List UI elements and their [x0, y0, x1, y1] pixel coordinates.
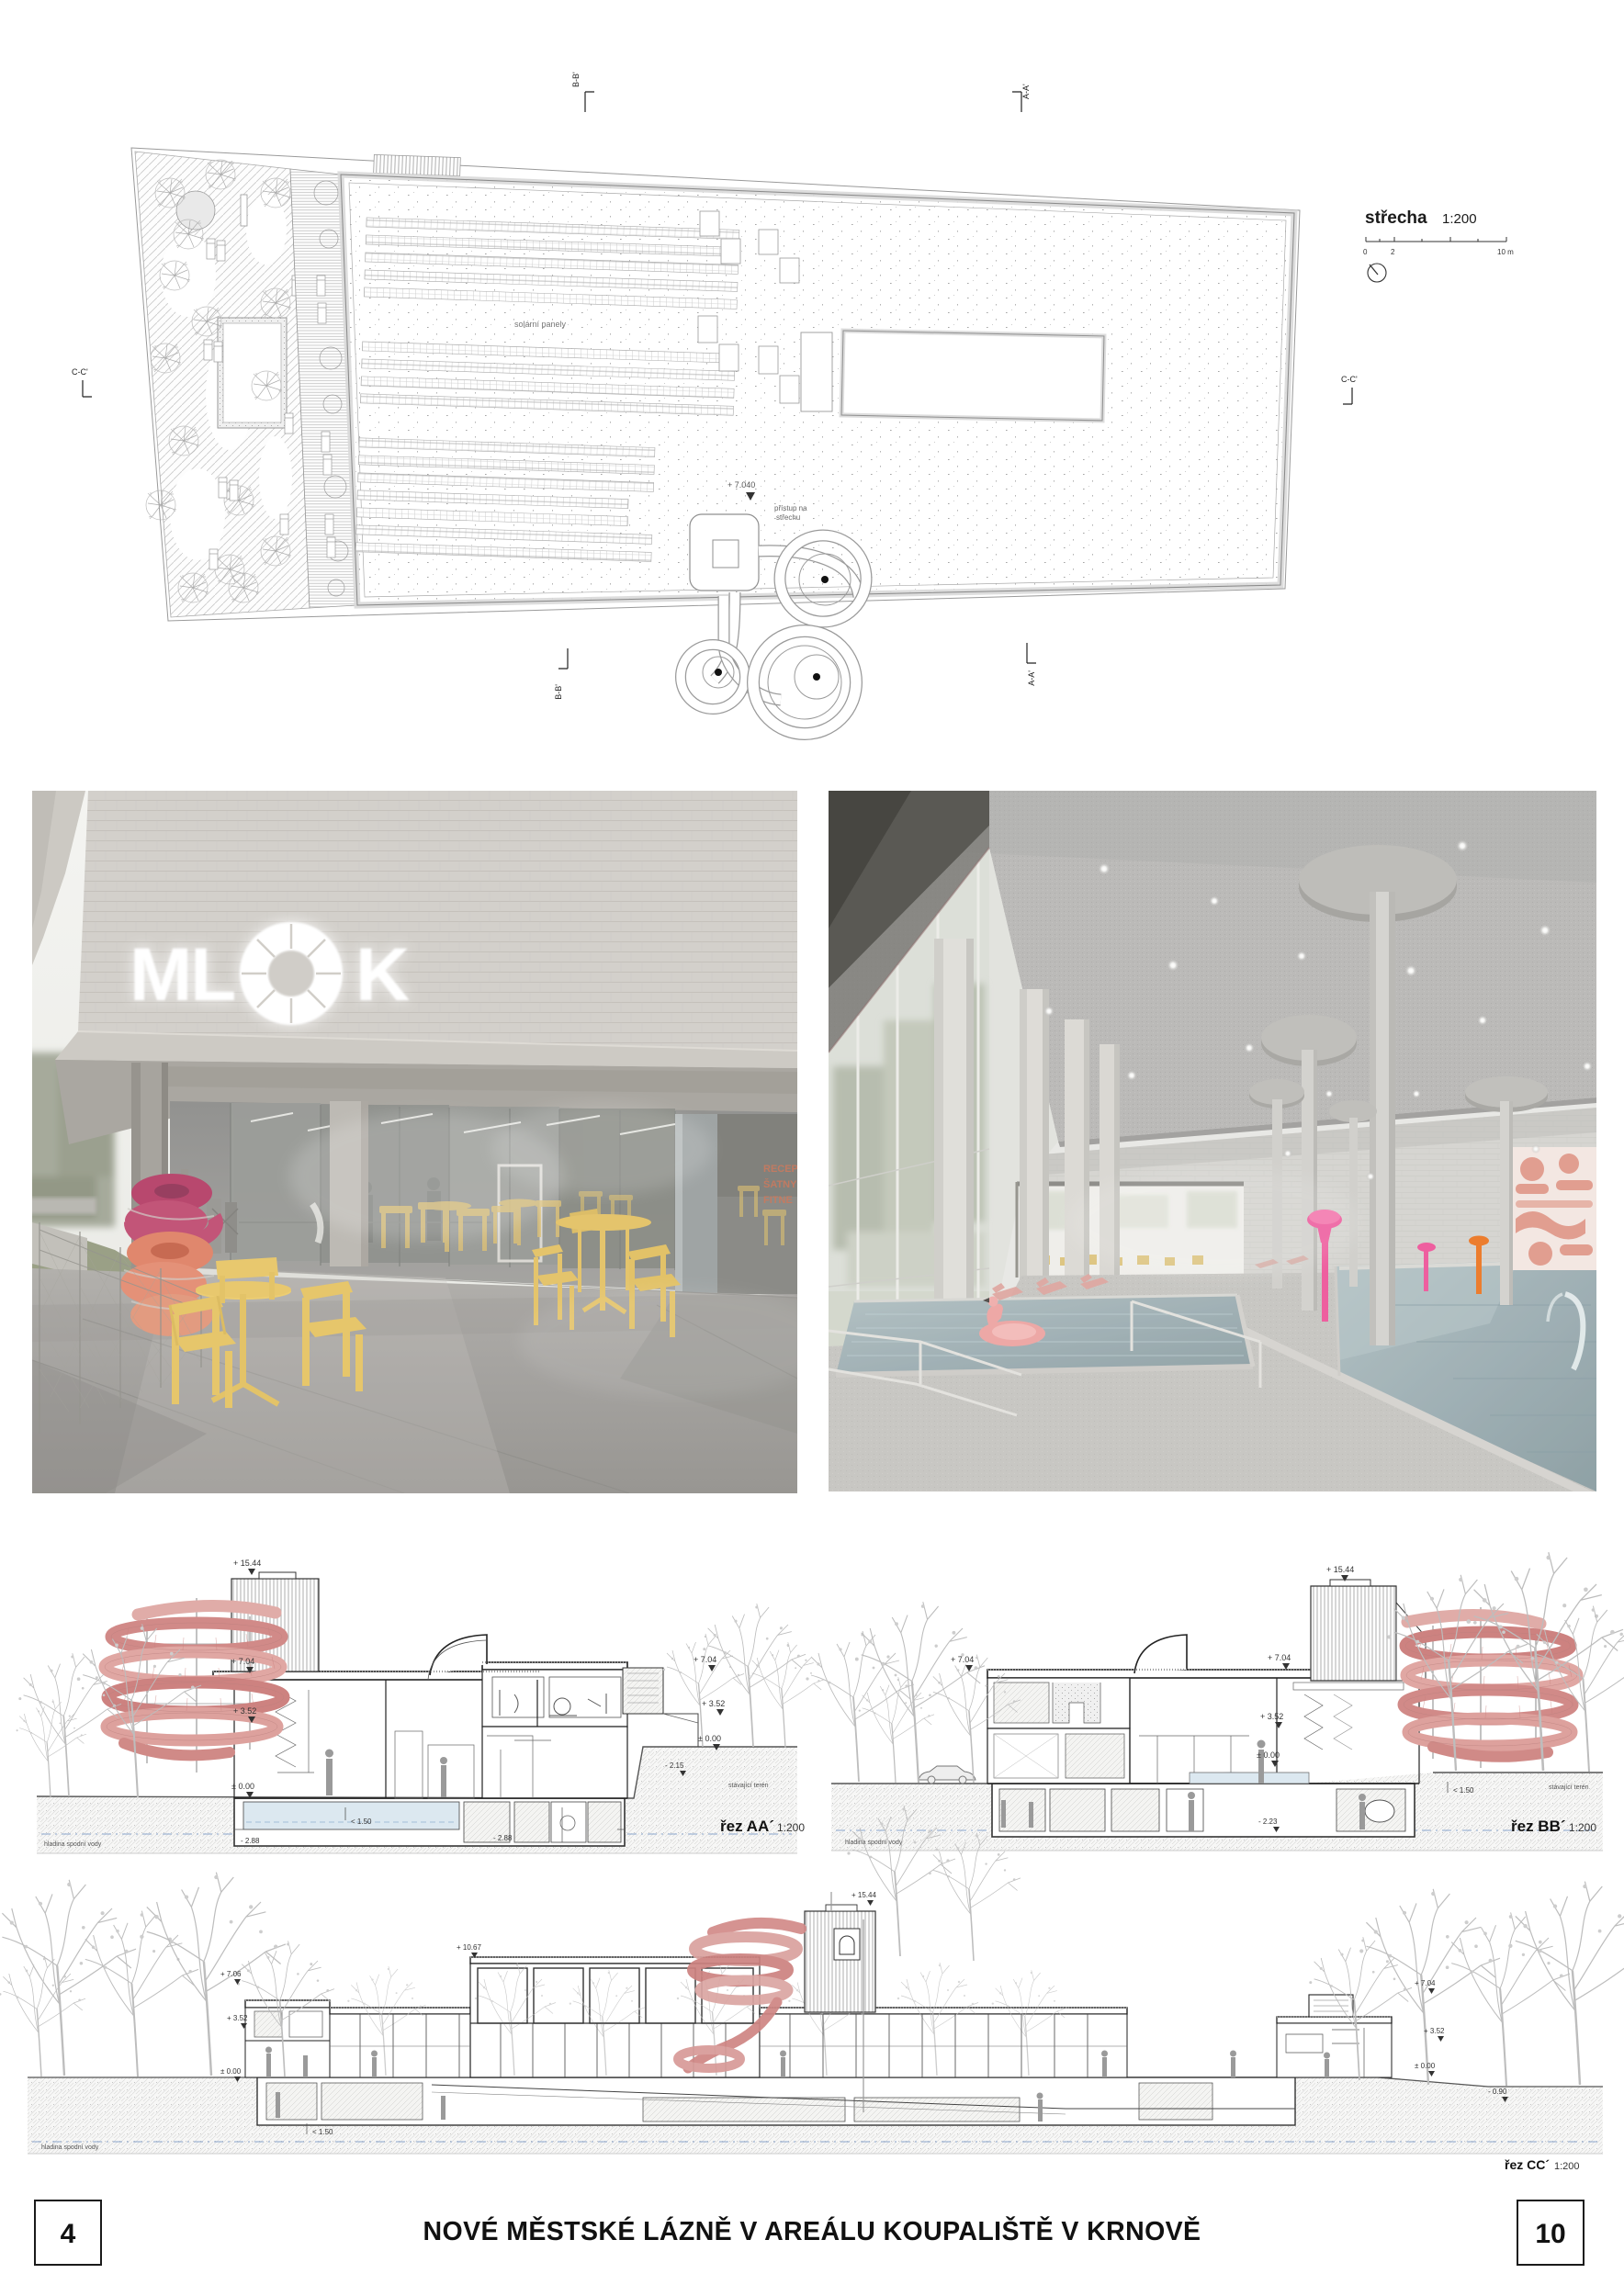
svg-text:střechu: střechu [776, 513, 800, 522]
svg-text:RECEP: RECEP [763, 1164, 798, 1175]
svg-text:10: 10 [1535, 2219, 1565, 2249]
svg-text:+ 3.52: + 3.52 [1424, 2027, 1445, 2035]
svg-text:+ 7.06: + 7.06 [220, 1970, 242, 1978]
svg-text:ŠATNY: ŠATNY [763, 1178, 797, 1190]
svg-text:± 0.00: ± 0.00 [220, 2067, 242, 2076]
svg-text:± 0.00: ± 0.00 [1257, 1750, 1280, 1760]
svg-text:B-B': B-B' [554, 684, 563, 700]
svg-text:- 2.15: - 2.15 [665, 1761, 684, 1770]
svg-text:0: 0 [1363, 248, 1368, 256]
svg-text:C-C': C-C' [1341, 375, 1358, 384]
svg-text:+ 7.04: + 7.04 [694, 1655, 716, 1664]
svg-text:A-A': A-A' [1027, 670, 1036, 686]
svg-text:B-B': B-B' [571, 72, 581, 87]
svg-text:řez CC´: řez CC´ [1505, 2157, 1550, 2172]
svg-text:- 2.23: - 2.23 [1258, 1818, 1278, 1826]
svg-text:1:200: 1:200 [1554, 2161, 1580, 2172]
svg-text:+ 7.04: + 7.04 [231, 1657, 254, 1666]
svg-text:10 m: 10 m [1497, 248, 1514, 256]
svg-text:± 0.00: ± 0.00 [1415, 2062, 1436, 2070]
svg-text:C-C': C-C' [72, 367, 88, 377]
svg-text:< 1.50: < 1.50 [1453, 1786, 1474, 1795]
svg-text:- 0.90: - 0.90 [1488, 2088, 1507, 2096]
svg-text:stávající terén: stávající terén [1549, 1784, 1589, 1791]
svg-text:4: 4 [61, 2219, 76, 2249]
svg-text:hladina spodní vody: hladina spodní vody [44, 1841, 102, 1848]
svg-text:< 1.50: < 1.50 [351, 1818, 372, 1826]
svg-text:1:200: 1:200 [777, 1821, 805, 1834]
svg-text:FITNE: FITNE [763, 1195, 793, 1206]
svg-text:+ 3.52: + 3.52 [227, 2014, 248, 2022]
svg-text:± 0.00: ± 0.00 [698, 1734, 721, 1743]
svg-text:hladina spodní vody: hladina spodní vody [41, 2144, 99, 2151]
svg-text:+ 7.04: + 7.04 [951, 1655, 974, 1664]
svg-text:přístup na: přístup na [774, 504, 807, 512]
svg-text:+ 7.040: + 7.040 [727, 480, 755, 490]
svg-text:+ 10.67: + 10.67 [457, 1943, 481, 1952]
svg-text:stávající terén: stávající terén [728, 1783, 769, 1789]
svg-text:řez AA´: řez AA´ [720, 1818, 774, 1835]
svg-text:+ 15.44: + 15.44 [1326, 1565, 1354, 1574]
svg-text:solární panely: solární panely [514, 320, 567, 329]
svg-text:hladina spodní vody: hladina spodní vody [845, 1840, 903, 1846]
svg-text:NOVÉ MĚSTSKÉ LÁZNĚ V AREÁLU KO: NOVÉ MĚSTSKÉ LÁZNĚ V AREÁLU KOUPALIŠTĚ V… [423, 2216, 1201, 2246]
svg-text:A-A': A-A' [1021, 84, 1031, 99]
svg-text:1:200: 1:200 [1442, 211, 1477, 227]
svg-text:1:200: 1:200 [1569, 1821, 1596, 1834]
svg-text:+ 3.52: + 3.52 [1260, 1712, 1283, 1721]
svg-text:- 2.88: - 2.88 [493, 1834, 513, 1842]
svg-text:< 1.50: < 1.50 [312, 2128, 333, 2136]
svg-text:+ 15.44: + 15.44 [851, 1891, 876, 1899]
svg-text:+ 3.52: + 3.52 [233, 1706, 256, 1716]
svg-text:+ 15.44: + 15.44 [233, 1559, 261, 1568]
svg-text:střecha: střecha [1365, 208, 1427, 228]
svg-text:ML: ML [130, 933, 234, 1017]
svg-text:± 0.00: ± 0.00 [231, 1782, 254, 1791]
svg-text:+ 3.52: + 3.52 [702, 1699, 725, 1708]
svg-text:2: 2 [1391, 248, 1395, 256]
svg-text:- 2.88: - 2.88 [241, 1837, 260, 1845]
svg-text:řez BB´: řez BB´ [1511, 1818, 1566, 1835]
svg-text:+ 7.04: + 7.04 [1268, 1653, 1291, 1662]
svg-text:K: K [355, 933, 410, 1017]
svg-text:+ 7.04: + 7.04 [1415, 1979, 1436, 1987]
